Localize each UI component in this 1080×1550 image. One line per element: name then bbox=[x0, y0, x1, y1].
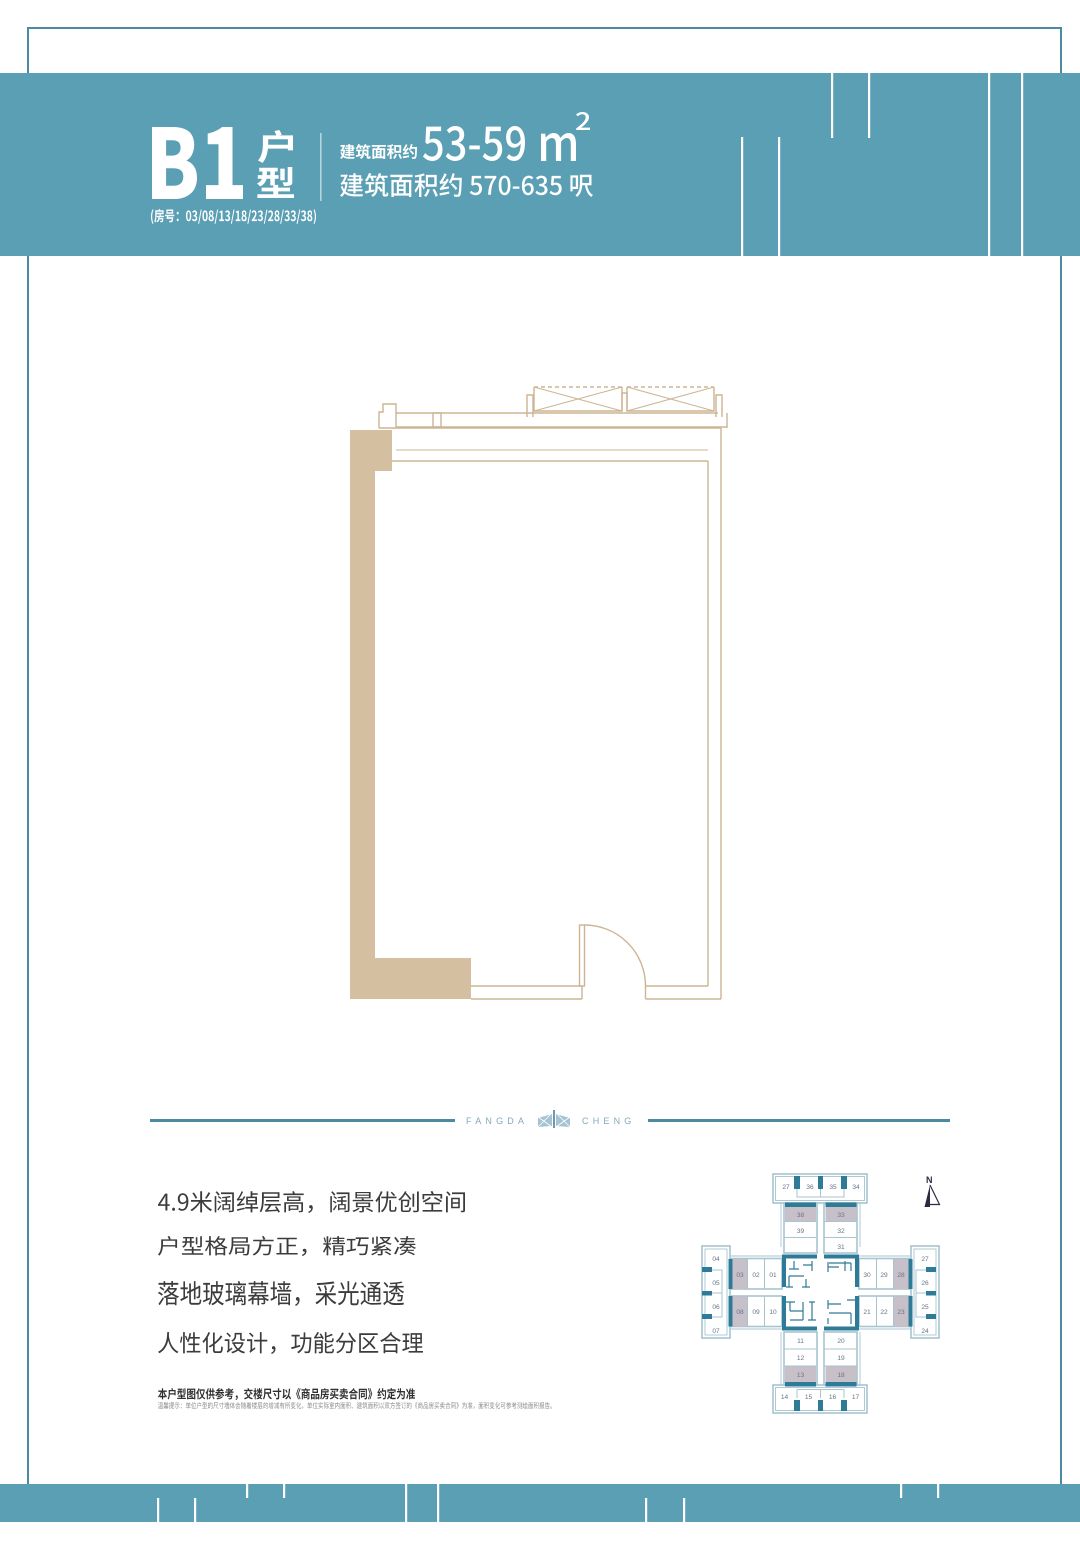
svg-text:38: 38 bbox=[797, 1212, 805, 1219]
svg-text:29: 29 bbox=[880, 1272, 888, 1279]
svg-text:30: 30 bbox=[863, 1272, 871, 1279]
svg-text:06: 06 bbox=[712, 1304, 720, 1311]
svg-text:32: 32 bbox=[837, 1228, 845, 1235]
svg-text:28: 28 bbox=[897, 1272, 905, 1279]
svg-text:05: 05 bbox=[712, 1280, 720, 1287]
svg-text:18: 18 bbox=[837, 1372, 845, 1379]
svg-text:26: 26 bbox=[921, 1280, 929, 1287]
svg-text:CHENG: CHENG bbox=[582, 1116, 636, 1126]
svg-text:25: 25 bbox=[921, 1304, 929, 1311]
svg-text:31: 31 bbox=[837, 1244, 845, 1251]
svg-text:27: 27 bbox=[921, 1256, 929, 1263]
svg-text:14: 14 bbox=[781, 1394, 789, 1401]
svg-text:07: 07 bbox=[712, 1328, 720, 1335]
svg-text:33: 33 bbox=[837, 1212, 845, 1219]
svg-text:13: 13 bbox=[797, 1372, 805, 1379]
svg-text:23: 23 bbox=[897, 1309, 905, 1316]
svg-text:10: 10 bbox=[769, 1309, 777, 1316]
svg-text:15: 15 bbox=[805, 1394, 813, 1401]
svg-text:FANGDA: FANGDA bbox=[466, 1116, 528, 1126]
svg-text:01: 01 bbox=[769, 1272, 777, 1279]
svg-text:N: N bbox=[926, 1175, 933, 1185]
svg-text:34: 34 bbox=[852, 1184, 860, 1191]
svg-text:20: 20 bbox=[837, 1338, 845, 1345]
svg-text:04: 04 bbox=[712, 1256, 720, 1263]
svg-text:39: 39 bbox=[797, 1228, 805, 1235]
svg-text:24: 24 bbox=[921, 1328, 929, 1335]
svg-text:36: 36 bbox=[806, 1184, 814, 1191]
svg-text:27: 27 bbox=[782, 1184, 790, 1191]
svg-text:21: 21 bbox=[863, 1309, 871, 1316]
svg-text:12: 12 bbox=[797, 1355, 805, 1362]
svg-text:17: 17 bbox=[852, 1394, 860, 1401]
svg-text:08: 08 bbox=[736, 1309, 744, 1316]
svg-text:19: 19 bbox=[837, 1355, 845, 1362]
svg-text:22: 22 bbox=[880, 1309, 888, 1316]
svg-text:09: 09 bbox=[752, 1309, 760, 1316]
svg-text:02: 02 bbox=[752, 1272, 760, 1279]
svg-text:35: 35 bbox=[829, 1184, 837, 1191]
svg-text:16: 16 bbox=[829, 1394, 837, 1401]
svg-text:03: 03 bbox=[736, 1272, 744, 1279]
svg-text:11: 11 bbox=[797, 1338, 804, 1345]
